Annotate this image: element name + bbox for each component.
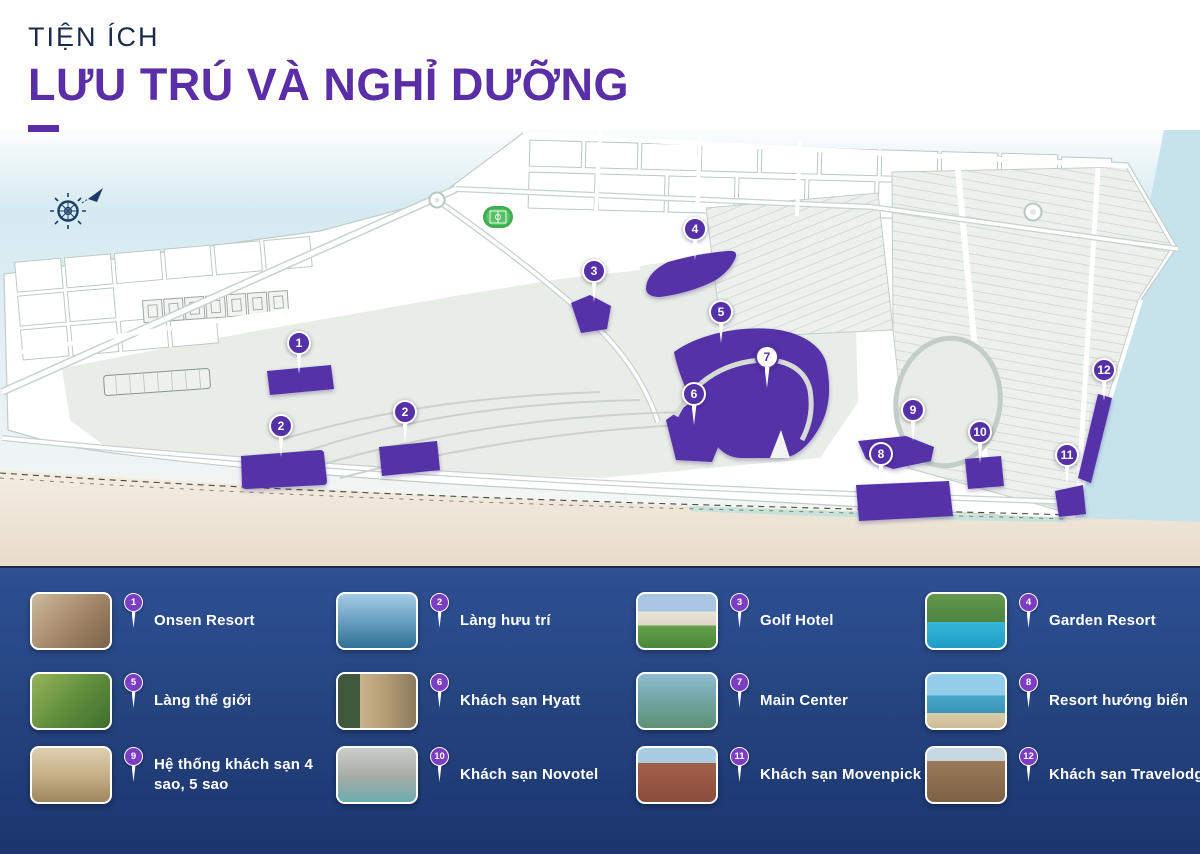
map-marker-10: 10 [968,420,992,463]
legend-item-8: 8 Resort hướng biển [925,672,1200,734]
pin-number: 9 [124,747,143,766]
legend-label: Hệ thống khách sạn 4 sao, 5 sao [154,746,326,804]
legend-pin: 3 [730,593,749,628]
legend-pin: 2 [430,593,449,628]
pin-number: 8 [1019,673,1038,692]
thumbnail-onsen-resort [30,592,112,650]
legend-label: Golf Hotel [760,592,932,650]
marker-number: 3 [582,259,606,283]
map-marker-7: 7 [755,345,779,388]
map-marker-8: 8 [869,442,893,485]
pin-number: 11 [730,747,749,766]
pin-number: 2 [430,593,449,612]
legend-pin: 4 [1019,593,1038,628]
legend-label: Làng hưu trí [460,592,632,650]
marker-number: 11 [1055,443,1079,467]
pin-number: 3 [730,593,749,612]
marker-number: 1 [287,331,311,355]
legend-item-5: 5 Làng thế giới [30,672,330,734]
legend-label: Khách sạn Novotel [460,746,632,804]
marker-number: 9 [901,398,925,422]
thumbnail-movenpick [636,746,718,804]
pin-number: 1 [124,593,143,612]
thumbnail-novotel [336,746,418,804]
map-marker-11: 11 [1055,443,1079,486]
map-marker-9: 9 [901,398,925,441]
marker-number: 4 [683,217,707,241]
legend-label: Khách sạn Travelodge [1049,746,1200,804]
pin-number: 5 [124,673,143,692]
legend-item-4: 4 Garden Resort [925,592,1200,654]
legend-pin: 6 [430,673,449,708]
thumbnail-lang-the-gioi [30,672,112,730]
map-marker-3: 3 [582,259,606,302]
thumbnail-travelodge [925,746,1007,804]
map-marker-2a: 2 [269,414,293,457]
legend-label: Main Center [760,672,932,730]
marker-number: 2 [269,414,293,438]
map-marker-12: 12 [1092,358,1116,401]
map-marker-1: 1 [287,331,311,374]
marker-number: 6 [682,382,706,406]
legend-pin: 12 [1019,747,1038,782]
legend-label: Resort hướng biển [1049,672,1200,730]
legend-item-2: 2 Làng hưu trí [336,592,636,654]
legend-item-12: 12 Khách sạn Travelodge [925,746,1200,808]
infographic: 1 2 2 3 4 5 6 7 8 9 10 11 12 TIỆN ÍCH LƯ… [0,0,1200,854]
page-title: LƯU TRÚ VÀ NGHỈ DƯỠNG [28,59,629,111]
legend-panel: 1 Onsen Resort 2 Làng hưu trí 3 Golf Hot… [0,566,1200,854]
marker-number: 10 [968,420,992,444]
legend-item-9: 9 Hệ thống khách sạn 4 sao, 5 sao [30,746,330,808]
legend-pin: 8 [1019,673,1038,708]
legend-item-6: 6 Khách sạn Hyatt [336,672,636,734]
map-marker-4: 4 [683,217,707,260]
legend-item-7: 7 Main Center [636,672,936,734]
marker-number: 5 [709,300,733,324]
marker-number: 8 [869,442,893,466]
header-kicker: TIỆN ÍCH [28,22,629,53]
legend-pin: 7 [730,673,749,708]
legend-pin: 9 [124,747,143,782]
pin-number: 6 [430,673,449,692]
legend-pin: 5 [124,673,143,708]
legend-pin: 11 [730,747,749,782]
legend-item-3: 3 Golf Hotel [636,592,936,654]
map-marker-2b: 2 [393,400,417,443]
pin-number: 12 [1019,747,1038,766]
legend-pin: 10 [430,747,449,782]
thumbnail-resort-huong-bien [925,672,1007,730]
legend-item-1: 1 Onsen Resort [30,592,330,654]
map-marker-6: 6 [682,382,706,425]
thumbnail-golf-hotel [636,592,718,650]
lot-fan-mid [706,193,893,338]
shape-resort-bien [856,481,953,521]
legend-item-11: 11 Khách sạn Movenpick [636,746,936,808]
legend-item-10: 10 Khách sạn Novotel [336,746,636,808]
legend-label: Garden Resort [1049,592,1200,650]
football-field-icon [483,206,513,228]
legend-label: Làng thế giới [154,672,326,730]
pin-number: 4 [1019,593,1038,612]
legend-pin: 1 [124,593,143,628]
thumbnail-main-center [636,672,718,730]
marker-number: 7 [755,345,779,369]
pin-number: 7 [730,673,749,692]
shape-lang-huu-tri-b [379,441,440,476]
map-marker-5: 5 [709,300,733,343]
thumbnail-garden-resort [925,592,1007,650]
pin-number: 10 [430,747,449,766]
thumbnail-lang-huu-tri [336,592,418,650]
marker-number: 12 [1092,358,1116,382]
legend-label: Khách sạn Hyatt [460,672,632,730]
thumbnail-hotel-system [30,746,112,804]
legend-label: Onsen Resort [154,592,326,650]
legend-label: Khách sạn Movenpick [760,746,932,804]
title-underline [28,125,59,132]
header: TIỆN ÍCH LƯU TRÚ VÀ NGHỈ DƯỠNG [28,22,629,132]
thumbnail-hyatt [336,672,418,730]
marker-number: 2 [393,400,417,424]
